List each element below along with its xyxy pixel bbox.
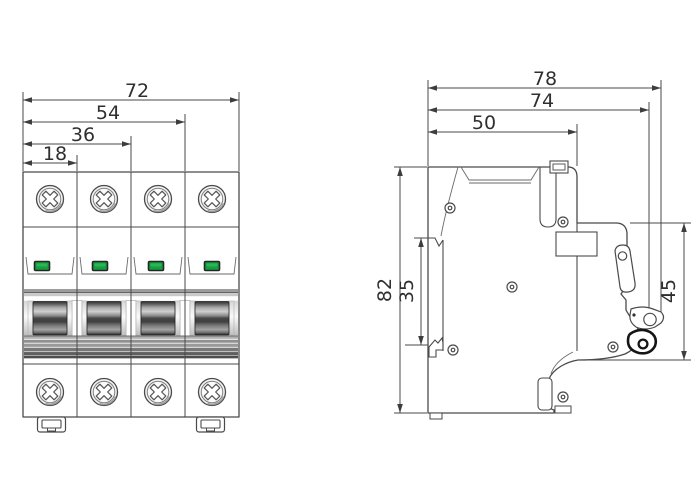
rivet-icon	[558, 217, 568, 227]
screw-head-icon	[199, 379, 226, 406]
technical-drawing-canvas: 72 54 36 18	[0, 0, 700, 500]
dim-78: 78	[428, 68, 661, 91]
front-view: 72 54 36 18	[23, 80, 239, 432]
dim-36-label: 36	[71, 124, 95, 146]
front-dimensions: 72 54 36 18	[23, 80, 239, 171]
toggle-handle	[87, 302, 121, 336]
dim-36: 36	[23, 124, 131, 147]
foot-slot	[538, 378, 552, 410]
screw-head-icon	[91, 186, 118, 213]
dim-72-label: 72	[125, 80, 149, 102]
back-bottom-tab	[430, 413, 442, 419]
screw-head-icon	[145, 379, 172, 406]
indicator-window-icon	[93, 262, 108, 271]
dim-54-label: 54	[96, 102, 120, 124]
toggle-handle	[33, 302, 67, 336]
dim-74-label: 74	[530, 90, 554, 112]
dim-45-label: 45	[658, 279, 680, 303]
rivet-icon	[558, 392, 568, 402]
din-rail-clip	[38, 417, 66, 432]
dim-82-label: 82	[374, 278, 396, 302]
latch-pivot	[644, 313, 656, 325]
toggle-handle	[195, 302, 229, 336]
dim-78-label: 78	[533, 68, 557, 90]
toggle-handle	[141, 302, 175, 336]
rivet-icon	[448, 345, 458, 355]
dim-50: 50	[428, 112, 577, 135]
screw-head-icon	[199, 186, 226, 213]
trip-hook-hole	[639, 340, 648, 349]
indicator-window-icon	[35, 262, 50, 271]
indicator-window-icon	[205, 262, 220, 271]
dim-54: 54	[23, 102, 185, 125]
screw-head-icon	[145, 186, 172, 213]
rivet-icon	[507, 282, 517, 292]
side-view: 78 74 50 82	[374, 68, 691, 419]
dim-50-label: 50	[472, 112, 496, 134]
dim-45: 45	[658, 223, 687, 360]
rivet-icon	[608, 342, 618, 352]
side-body-outline	[428, 167, 640, 413]
latch-dot	[632, 313, 635, 316]
indicator-window-icon	[149, 262, 164, 271]
front-plate	[556, 232, 597, 256]
dim-18-label: 18	[43, 143, 67, 165]
rivet-icon	[445, 203, 455, 213]
dim-35-label: 35	[396, 279, 418, 303]
dim-74: 74	[428, 90, 649, 113]
lever-hole	[618, 252, 626, 260]
dim-72: 72	[23, 80, 239, 103]
screw-head-icon	[37, 186, 64, 213]
screw-head-icon	[37, 379, 64, 406]
breaker-dimension-drawing: 72 54 36 18	[0, 0, 700, 500]
screw-head-icon	[91, 379, 118, 406]
din-rail-clip	[197, 417, 225, 432]
bottom-clip-tab	[555, 406, 571, 413]
